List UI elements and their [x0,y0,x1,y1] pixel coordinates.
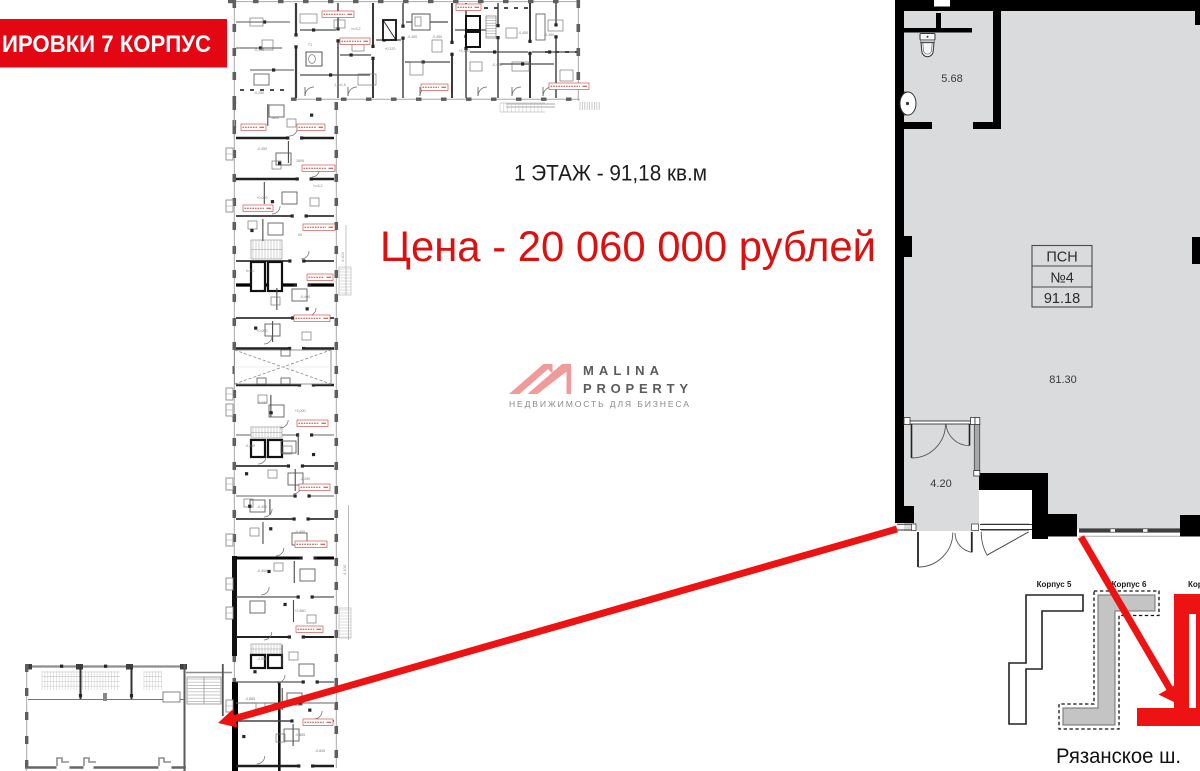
svg-text:-0,450: -0,450 [407,35,417,39]
svg-text:-0,400: -0,400 [257,569,267,573]
svg-text:Рязанское ш.: Рязанское ш. [1056,744,1181,768]
svg-text:-0,450: -0,450 [257,147,267,151]
svg-text:+0,020: +0,020 [256,196,267,200]
svg-text:5.68: 5.68 [941,73,962,85]
svg-text:Т1: Т1 [308,43,312,47]
svg-text:+2,850: +2,850 [294,609,305,613]
svg-text:-0,605: -0,605 [315,749,325,753]
svg-text:+0,370: +0,370 [384,47,395,51]
svg-text:ИРОВКИ 7 КОРПУС: ИРОВКИ 7 КОРПУС [2,31,211,58]
svg-text:+0,000: +0,000 [256,329,267,333]
svg-text:Корпус 6: Корпус 6 [1112,580,1147,589]
svg-text:81.30: 81.30 [1049,374,1077,386]
svg-text:-0,885: -0,885 [245,697,255,701]
svg-text:h=3,2: h=3,2 [351,27,360,31]
svg-text:НЕДВИЖИМОСТЬ ДЛЯ БИЗНЕСА: НЕДВИЖИМОСТЬ ДЛЯ БИЗНЕСА [509,399,689,409]
svg-text:h=3,2: h=3,2 [313,184,322,188]
svg-text:-0,450: -0,450 [544,33,554,37]
svg-text:ПСН: ПСН [1046,250,1077,266]
svg-text:-0,450: -0,450 [295,530,305,534]
svg-text:1,5х1,5: 1,5х1,5 [334,83,346,87]
svg-text:4.400: 4.400 [340,251,345,262]
svg-text:91.18: 91.18 [1044,291,1080,307]
svg-text:-0,850: -0,850 [245,444,255,448]
svg-text:-0,400: -0,400 [300,295,310,299]
svg-text:4.100: 4.100 [342,564,347,575]
svg-text:h=21: h=21 [246,269,254,273]
svg-text:-0,030: -0,030 [257,401,267,405]
svg-text:Цена - 20 060 000 рублей: Цена - 20 060 000 рублей [380,223,876,271]
svg-text:Корпус 5: Корпус 5 [1037,580,1072,589]
svg-text:4.20: 4.20 [930,478,951,490]
svg-text:№4: №4 [1050,271,1074,287]
svg-text:+3,150: +3,150 [458,49,469,53]
svg-text:+3,000: +3,000 [294,409,305,413]
svg-text:1806: 1806 [296,159,304,163]
svg-text:-0,450: -0,450 [492,63,502,67]
svg-text:-0,250: -0,250 [254,48,264,52]
svg-text:-2,050: -2,050 [257,657,267,661]
svg-text:1 ЭТАЖ - 91,18 кв.м: 1 ЭТАЖ - 91,18 кв.м [514,161,707,186]
svg-text:-2,250: -2,250 [300,477,310,481]
svg-text:1806: 1806 [271,116,279,120]
svg-text:-0,450: -0,450 [257,505,267,509]
svg-text:-0,885: -0,885 [295,733,305,737]
svg-text:-0,250: -0,250 [254,91,264,95]
svg-text:-0,450: -0,450 [518,31,528,35]
svg-text:-0,450: -0,450 [432,35,442,39]
svg-text:Корпус 7: Корпус 7 [1188,580,1200,589]
svg-text:05: 05 [298,233,302,237]
